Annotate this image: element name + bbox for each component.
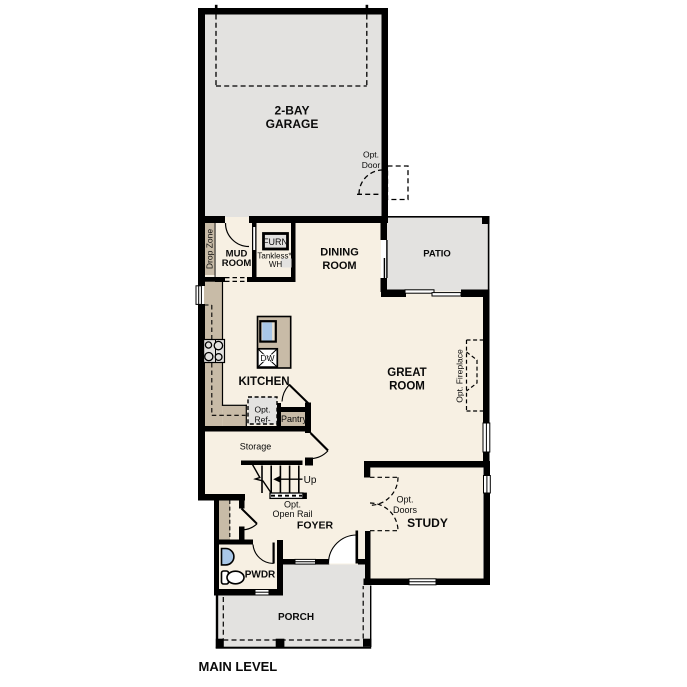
svg-text:Opt. Fireplace: Opt. Fireplace	[455, 349, 465, 403]
svg-text:PORCH: PORCH	[278, 612, 314, 623]
svg-text:DW: DW	[260, 353, 274, 363]
svg-text:Open Rail: Open Rail	[272, 509, 312, 519]
svg-text:Doors: Doors	[393, 505, 418, 515]
svg-text:Up: Up	[304, 475, 317, 486]
svg-text:Opt.: Opt.	[254, 405, 270, 415]
svg-text:Door: Door	[362, 160, 381, 170]
svg-text:Opt.: Opt.	[363, 150, 379, 160]
svg-text:PATIO: PATIO	[423, 249, 451, 260]
svg-text:Ref-: Ref-	[254, 415, 270, 425]
svg-text:KITCHEN: KITCHEN	[238, 376, 289, 388]
svg-text:GREAT: GREAT	[387, 367, 426, 379]
svg-text:ROOM: ROOM	[322, 260, 356, 272]
svg-text:2-BAY: 2-BAY	[275, 104, 310, 118]
svg-text:WH: WH	[269, 260, 283, 269]
svg-text:GARAGE: GARAGE	[266, 117, 319, 131]
svg-text:DINING: DINING	[320, 247, 359, 259]
svg-text:PWDR: PWDR	[245, 570, 276, 581]
svg-text:STUDY: STUDY	[407, 516, 448, 530]
svg-text:Pantry: Pantry	[281, 414, 308, 424]
svg-text:FURN: FURN	[263, 237, 288, 247]
svg-text:ROOM: ROOM	[222, 258, 252, 269]
svg-text:ROOM: ROOM	[389, 381, 425, 393]
svg-text:Storage: Storage	[240, 442, 272, 452]
svg-text:MAIN LEVEL: MAIN LEVEL	[199, 659, 278, 674]
svg-text:Drop Zone: Drop Zone	[205, 229, 215, 269]
svg-text:FOYER: FOYER	[297, 520, 334, 532]
svg-text:Opt.: Opt.	[284, 500, 301, 510]
svg-text:Opt.: Opt.	[396, 495, 413, 505]
